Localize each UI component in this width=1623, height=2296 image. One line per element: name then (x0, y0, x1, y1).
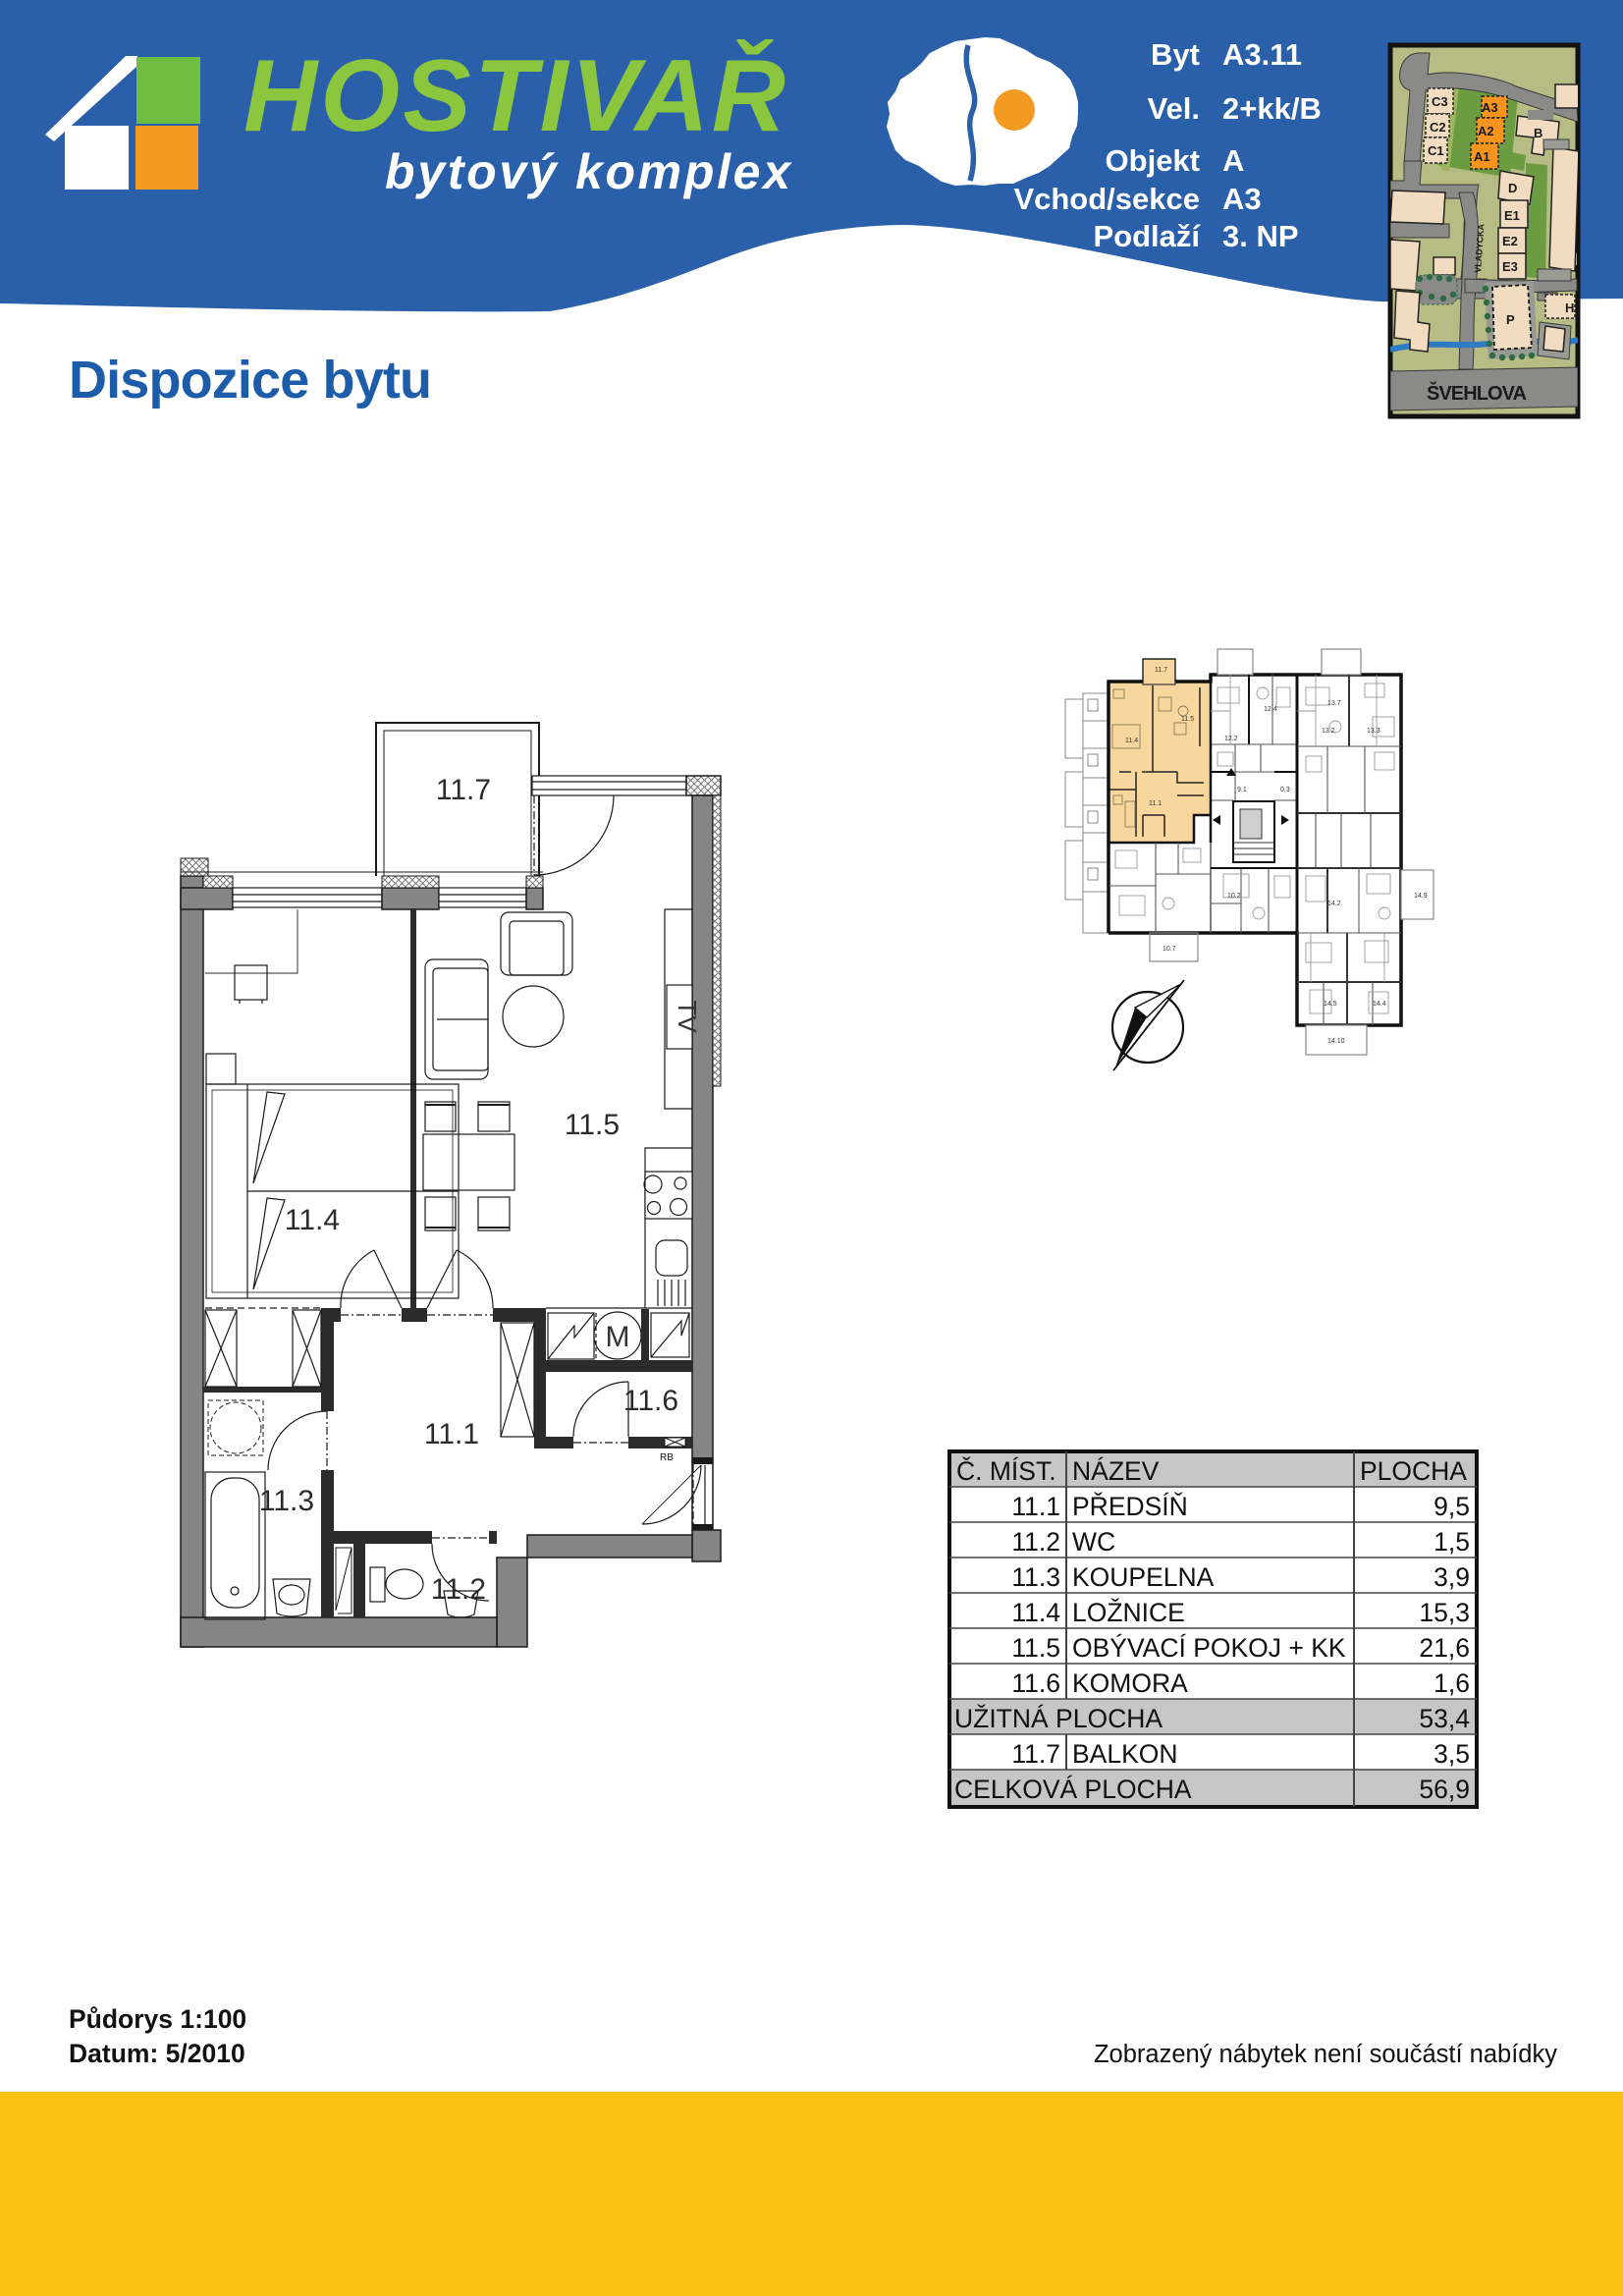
svg-text:11.3: 11.3 (259, 1485, 314, 1517)
svg-text:53,4: 53,4 (1419, 1704, 1470, 1733)
svg-text:C3: C3 (1432, 94, 1448, 109)
svg-text:15,3: 15,3 (1419, 1598, 1470, 1627)
svg-text:Půdorys 1:100: Půdorys 1:100 (69, 2004, 246, 2034)
svg-text:1,5: 1,5 (1434, 1527, 1470, 1557)
svg-text:Objekt: Objekt (1106, 143, 1200, 178)
svg-text:E3: E3 (1502, 259, 1518, 274)
svg-text:1,6: 1,6 (1434, 1668, 1470, 1698)
svg-text:M: M (606, 1321, 630, 1353)
svg-text:PLOCHA: PLOCHA (1360, 1456, 1467, 1486)
svg-text:11.1: 11.1 (1149, 800, 1162, 807)
svg-text:11.2: 11.2 (1011, 1527, 1060, 1557)
svg-text:ŠVEHLOVA: ŠVEHLOVA (1427, 381, 1527, 405)
svg-text:C1: C1 (1428, 143, 1444, 158)
svg-text:D: D (1508, 181, 1517, 195)
svg-text:11.4: 11.4 (285, 1204, 340, 1236)
svg-text:11.3: 11.3 (1011, 1562, 1060, 1592)
svg-text:11.7: 11.7 (1011, 1739, 1060, 1769)
svg-text:A3: A3 (1222, 182, 1262, 216)
svg-text:10.7: 10.7 (1163, 946, 1176, 953)
svg-text:WC: WC (1072, 1527, 1115, 1557)
svg-text:E1: E1 (1504, 208, 1520, 223)
svg-text:PŘEDSÍŇ: PŘEDSÍŇ (1072, 1492, 1188, 1521)
svg-text:H: H (1565, 301, 1574, 315)
svg-text:14.5: 14.5 (1324, 1001, 1337, 1008)
svg-text:13.7: 13.7 (1327, 700, 1341, 707)
svg-text:0.3: 0.3 (1280, 787, 1290, 793)
svg-text:UŽITNÁ PLOCHA: UŽITNÁ PLOCHA (954, 1704, 1163, 1733)
svg-text:A3.11: A3.11 (1222, 37, 1302, 72)
svg-text:12.2: 12.2 (1224, 736, 1238, 742)
svg-text:2+kk/B: 2+kk/B (1222, 91, 1322, 126)
svg-text:13.2: 13.2 (1322, 728, 1335, 735)
svg-text:E2: E2 (1502, 234, 1518, 248)
svg-text:13.3: 13.3 (1367, 728, 1380, 735)
svg-text:Vchod/sekce: Vchod/sekce (1013, 182, 1200, 216)
svg-text:11.1: 11.1 (1011, 1492, 1060, 1521)
svg-text:A3: A3 (1482, 100, 1498, 115)
svg-text:KOMORA: KOMORA (1072, 1668, 1188, 1698)
svg-text:10.2: 10.2 (1227, 893, 1241, 900)
svg-text:9,5: 9,5 (1434, 1492, 1470, 1521)
svg-text:TV: TV (673, 1000, 702, 1033)
svg-text:3,5: 3,5 (1434, 1739, 1470, 1769)
svg-text:A2: A2 (1478, 124, 1494, 138)
svg-text:OBÝVACÍ POKOJ + KK: OBÝVACÍ POKOJ + KK (1072, 1633, 1346, 1663)
svg-text:14.9: 14.9 (1414, 893, 1428, 900)
svg-text:56,9: 56,9 (1419, 1775, 1470, 1804)
svg-text:11.2: 11.2 (431, 1573, 486, 1606)
svg-text:3. NP: 3. NP (1222, 219, 1299, 253)
svg-text:11.5: 11.5 (1181, 716, 1194, 723)
svg-text:A1: A1 (1474, 149, 1490, 164)
svg-text:Vel.: Vel. (1148, 91, 1200, 126)
svg-text:NÁZEV: NÁZEV (1072, 1456, 1160, 1486)
svg-text:11.7: 11.7 (436, 774, 491, 806)
svg-text:LOŽNICE: LOŽNICE (1072, 1598, 1185, 1627)
svg-text:Dispozice bytu: Dispozice bytu (69, 351, 432, 410)
svg-text:3,9: 3,9 (1434, 1562, 1470, 1592)
svg-text:9.1: 9.1 (1237, 787, 1247, 793)
svg-text:Byt: Byt (1151, 37, 1200, 72)
svg-text:BALKON: BALKON (1072, 1739, 1178, 1769)
svg-text:Podlaží: Podlaží (1093, 219, 1201, 253)
svg-text:11.6: 11.6 (1011, 1668, 1060, 1698)
svg-text:14.2: 14.2 (1327, 901, 1341, 907)
svg-text:RB: RB (660, 1452, 674, 1463)
svg-text:A: A (1222, 143, 1244, 178)
svg-text:Zobrazený nábytek není součást: Zobrazený nábytek není součástí nabídky (1094, 2041, 1557, 2068)
svg-text:CELKOVÁ PLOCHA: CELKOVÁ PLOCHA (954, 1775, 1192, 1804)
svg-text:11.1: 11.1 (424, 1418, 479, 1450)
svg-text:Datum: 5/2010: Datum: 5/2010 (69, 2039, 245, 2068)
svg-text:C2: C2 (1430, 120, 1446, 135)
svg-text:11.4: 11.4 (1011, 1598, 1060, 1627)
svg-text:11.5: 11.5 (565, 1109, 620, 1141)
svg-text:Č. MÍST.: Č. MÍST. (956, 1456, 1056, 1486)
svg-text:KOUPELNA: KOUPELNA (1072, 1562, 1215, 1592)
svg-text:11.6: 11.6 (623, 1385, 678, 1417)
svg-text:B: B (1534, 126, 1542, 140)
svg-text:14.4: 14.4 (1373, 1001, 1386, 1008)
svg-text:21,6: 21,6 (1419, 1633, 1470, 1663)
svg-text:P: P (1506, 312, 1515, 327)
svg-text:11.7: 11.7 (1155, 667, 1167, 674)
svg-text:11.4: 11.4 (1125, 738, 1138, 744)
svg-text:HOSTIVAŘ: HOSTIVAŘ (243, 39, 785, 153)
svg-text:12.4: 12.4 (1264, 706, 1277, 713)
svg-text:11.5: 11.5 (1011, 1633, 1060, 1663)
svg-text:14.10: 14.10 (1327, 1038, 1345, 1045)
